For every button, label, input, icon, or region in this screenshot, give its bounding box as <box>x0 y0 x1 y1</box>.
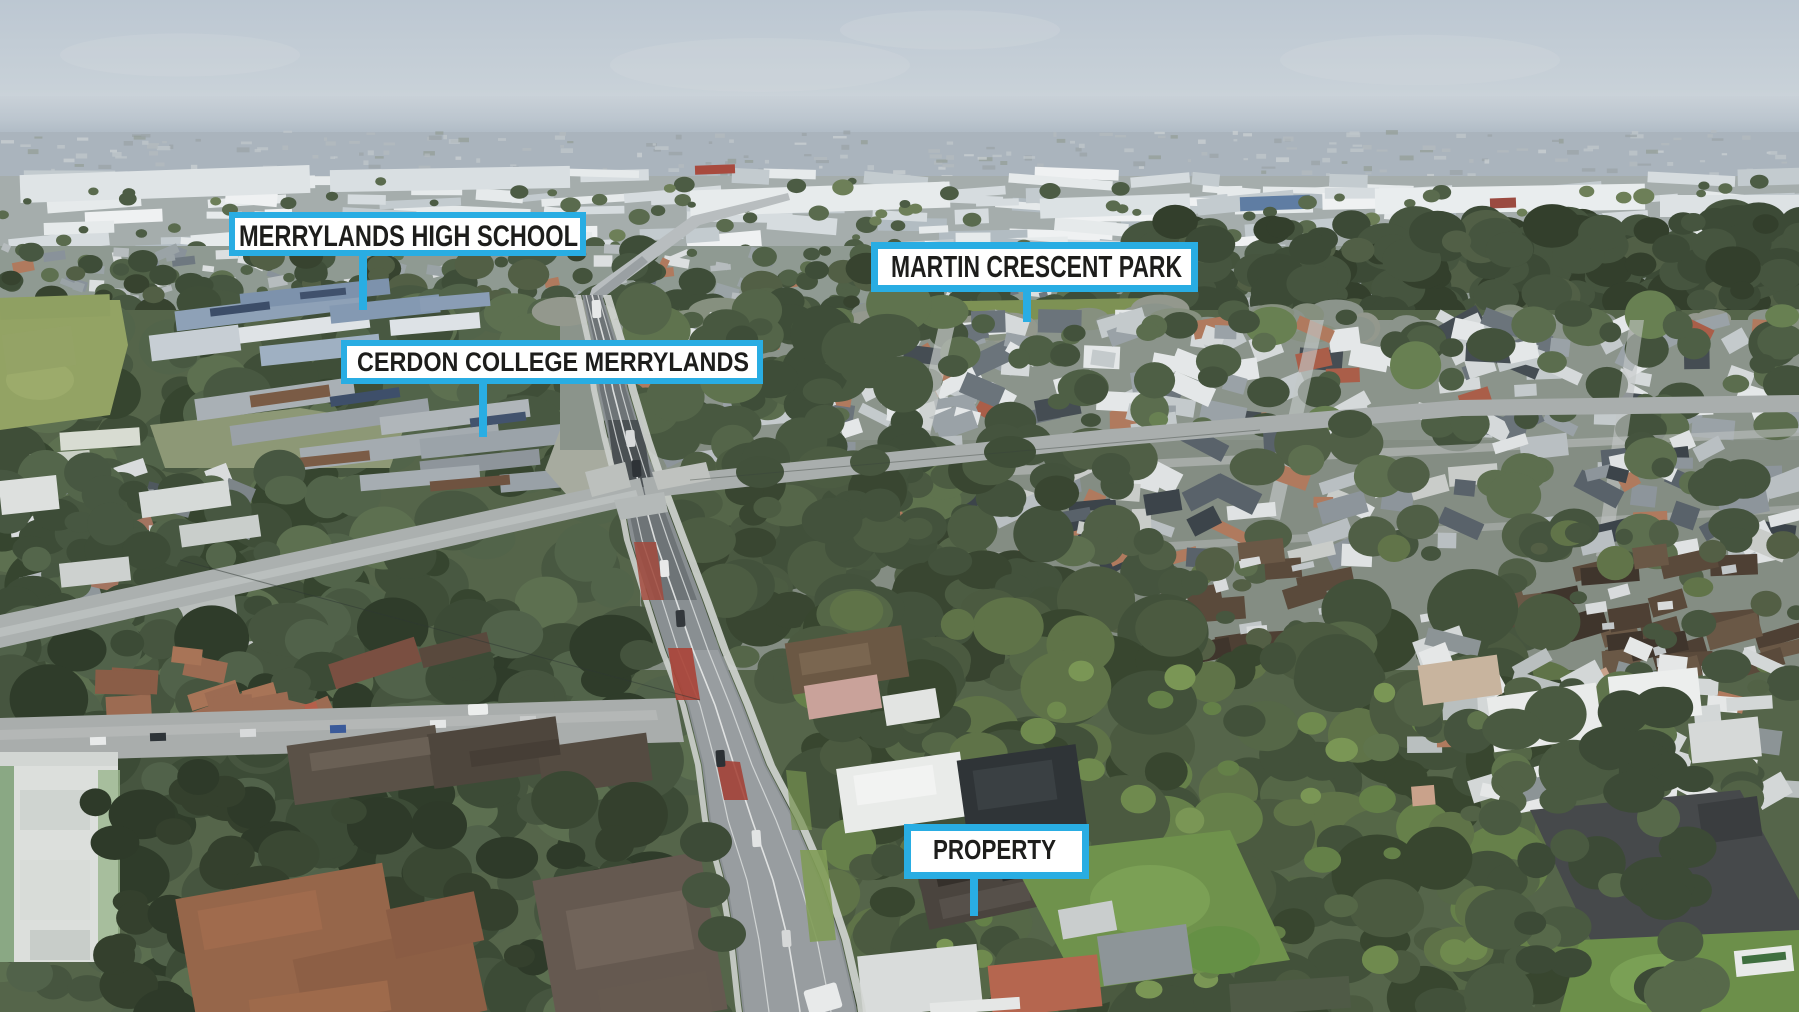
svg-text:PROPERTY: PROPERTY <box>933 834 1056 865</box>
svg-text:CERDON COLLEGE MERRYLANDS: CERDON COLLEGE MERRYLANDS <box>357 347 749 377</box>
svg-text:MERRYLANDS HIGH SCHOOL: MERRYLANDS HIGH SCHOOL <box>239 220 578 253</box>
svg-text:MARTIN CRESCENT PARK: MARTIN CRESCENT PARK <box>891 249 1182 284</box>
